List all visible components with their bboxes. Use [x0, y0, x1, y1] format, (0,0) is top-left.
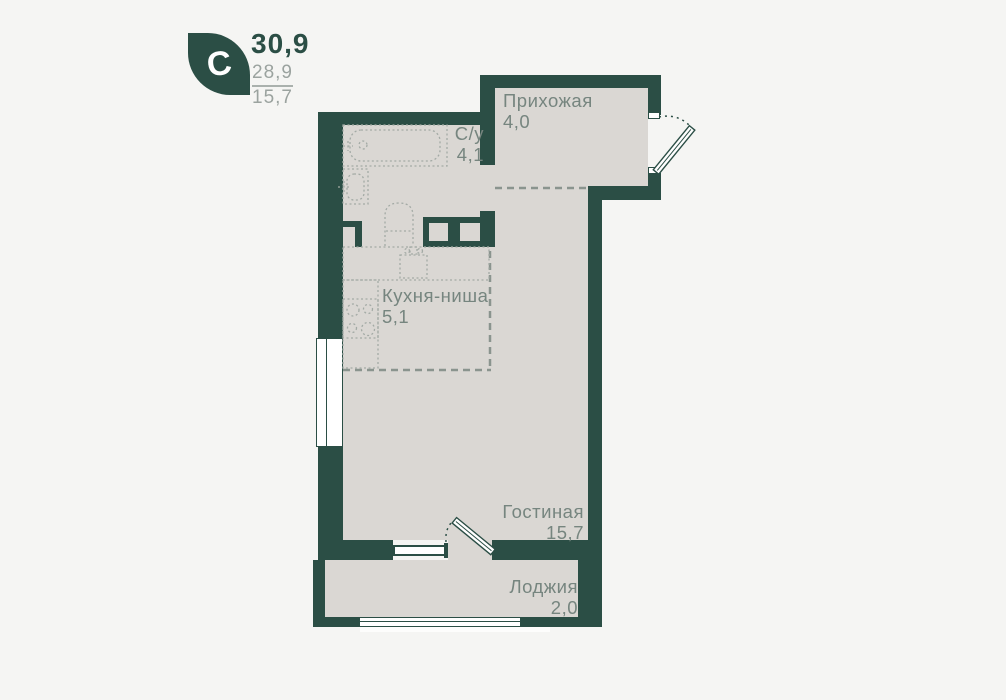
- room-name: Лоджия: [448, 576, 578, 597]
- room-area: 4,1: [404, 144, 484, 165]
- living-area: 28,9: [252, 62, 293, 87]
- room-label-bathroom: С/у 4,1: [404, 123, 484, 165]
- wall: [588, 200, 602, 540]
- room-area: 4,0: [503, 111, 593, 132]
- floorplan-page: C 30,9 28,9 15,7: [0, 0, 1006, 700]
- room-area: 15,7: [454, 522, 584, 543]
- wall: [492, 540, 602, 560]
- room-area: 2,0: [448, 597, 578, 618]
- wall-shaft: [355, 221, 362, 247]
- window-sill: [360, 627, 550, 632]
- room-name: С/у: [404, 123, 484, 144]
- room-name: Прихожая: [503, 90, 593, 111]
- wall: [480, 75, 661, 88]
- room-name: Кухня-ниша: [382, 285, 488, 306]
- room-label-living: Гостиная 15,7: [454, 501, 584, 543]
- developer-logo: C: [188, 33, 250, 95]
- wall: [578, 560, 602, 627]
- room-label-hallway: Прихожая 4,0: [503, 90, 593, 132]
- window-loggia: [360, 618, 520, 626]
- wall-shaft: [448, 222, 460, 247]
- wall: [318, 447, 343, 540]
- entry-door-sill: [648, 112, 660, 119]
- room-area: 5,1: [382, 306, 488, 327]
- wall: [318, 540, 393, 560]
- wall-shaft: [423, 217, 429, 247]
- floor-main: [343, 125, 588, 540]
- floor-door-gap: [448, 540, 492, 560]
- entry-door-sill: [648, 167, 660, 174]
- wall: [588, 186, 661, 200]
- room-label-kitchen: Кухня-ниша 5,1: [382, 285, 488, 327]
- room-name: Гостиная: [454, 501, 584, 522]
- window-left-wall: [316, 338, 343, 447]
- door-swing-arc: [659, 116, 691, 127]
- wall-shaft: [480, 211, 495, 247]
- secondary-area: 15,7: [252, 87, 293, 109]
- wall: [648, 88, 661, 115]
- window-living-loggia: [393, 545, 446, 556]
- logo-letter: C: [204, 45, 233, 82]
- total-area: 30,9: [251, 28, 310, 60]
- room-label-loggia: Лоджия 2,0: [448, 576, 578, 618]
